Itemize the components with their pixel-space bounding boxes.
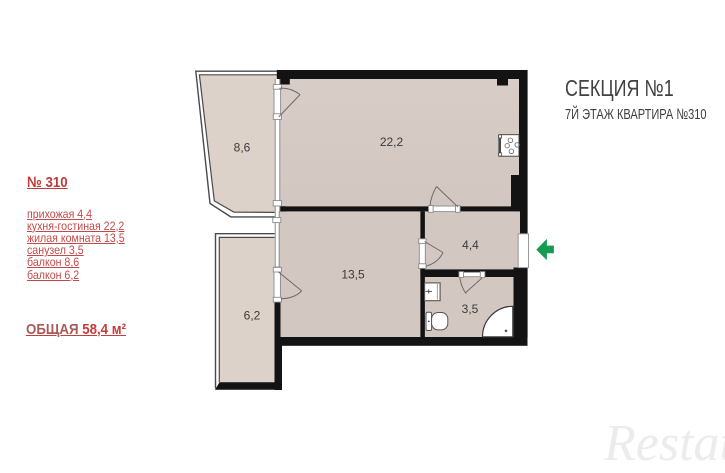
svg-text:6,2: 6,2 <box>244 309 261 323</box>
svg-text:8,6: 8,6 <box>234 141 251 155</box>
svg-text:3,5: 3,5 <box>462 302 479 316</box>
svg-text:13,5: 13,5 <box>341 268 365 282</box>
svg-text:22,2: 22,2 <box>380 135 404 149</box>
svg-text:4,4: 4,4 <box>462 238 479 252</box>
